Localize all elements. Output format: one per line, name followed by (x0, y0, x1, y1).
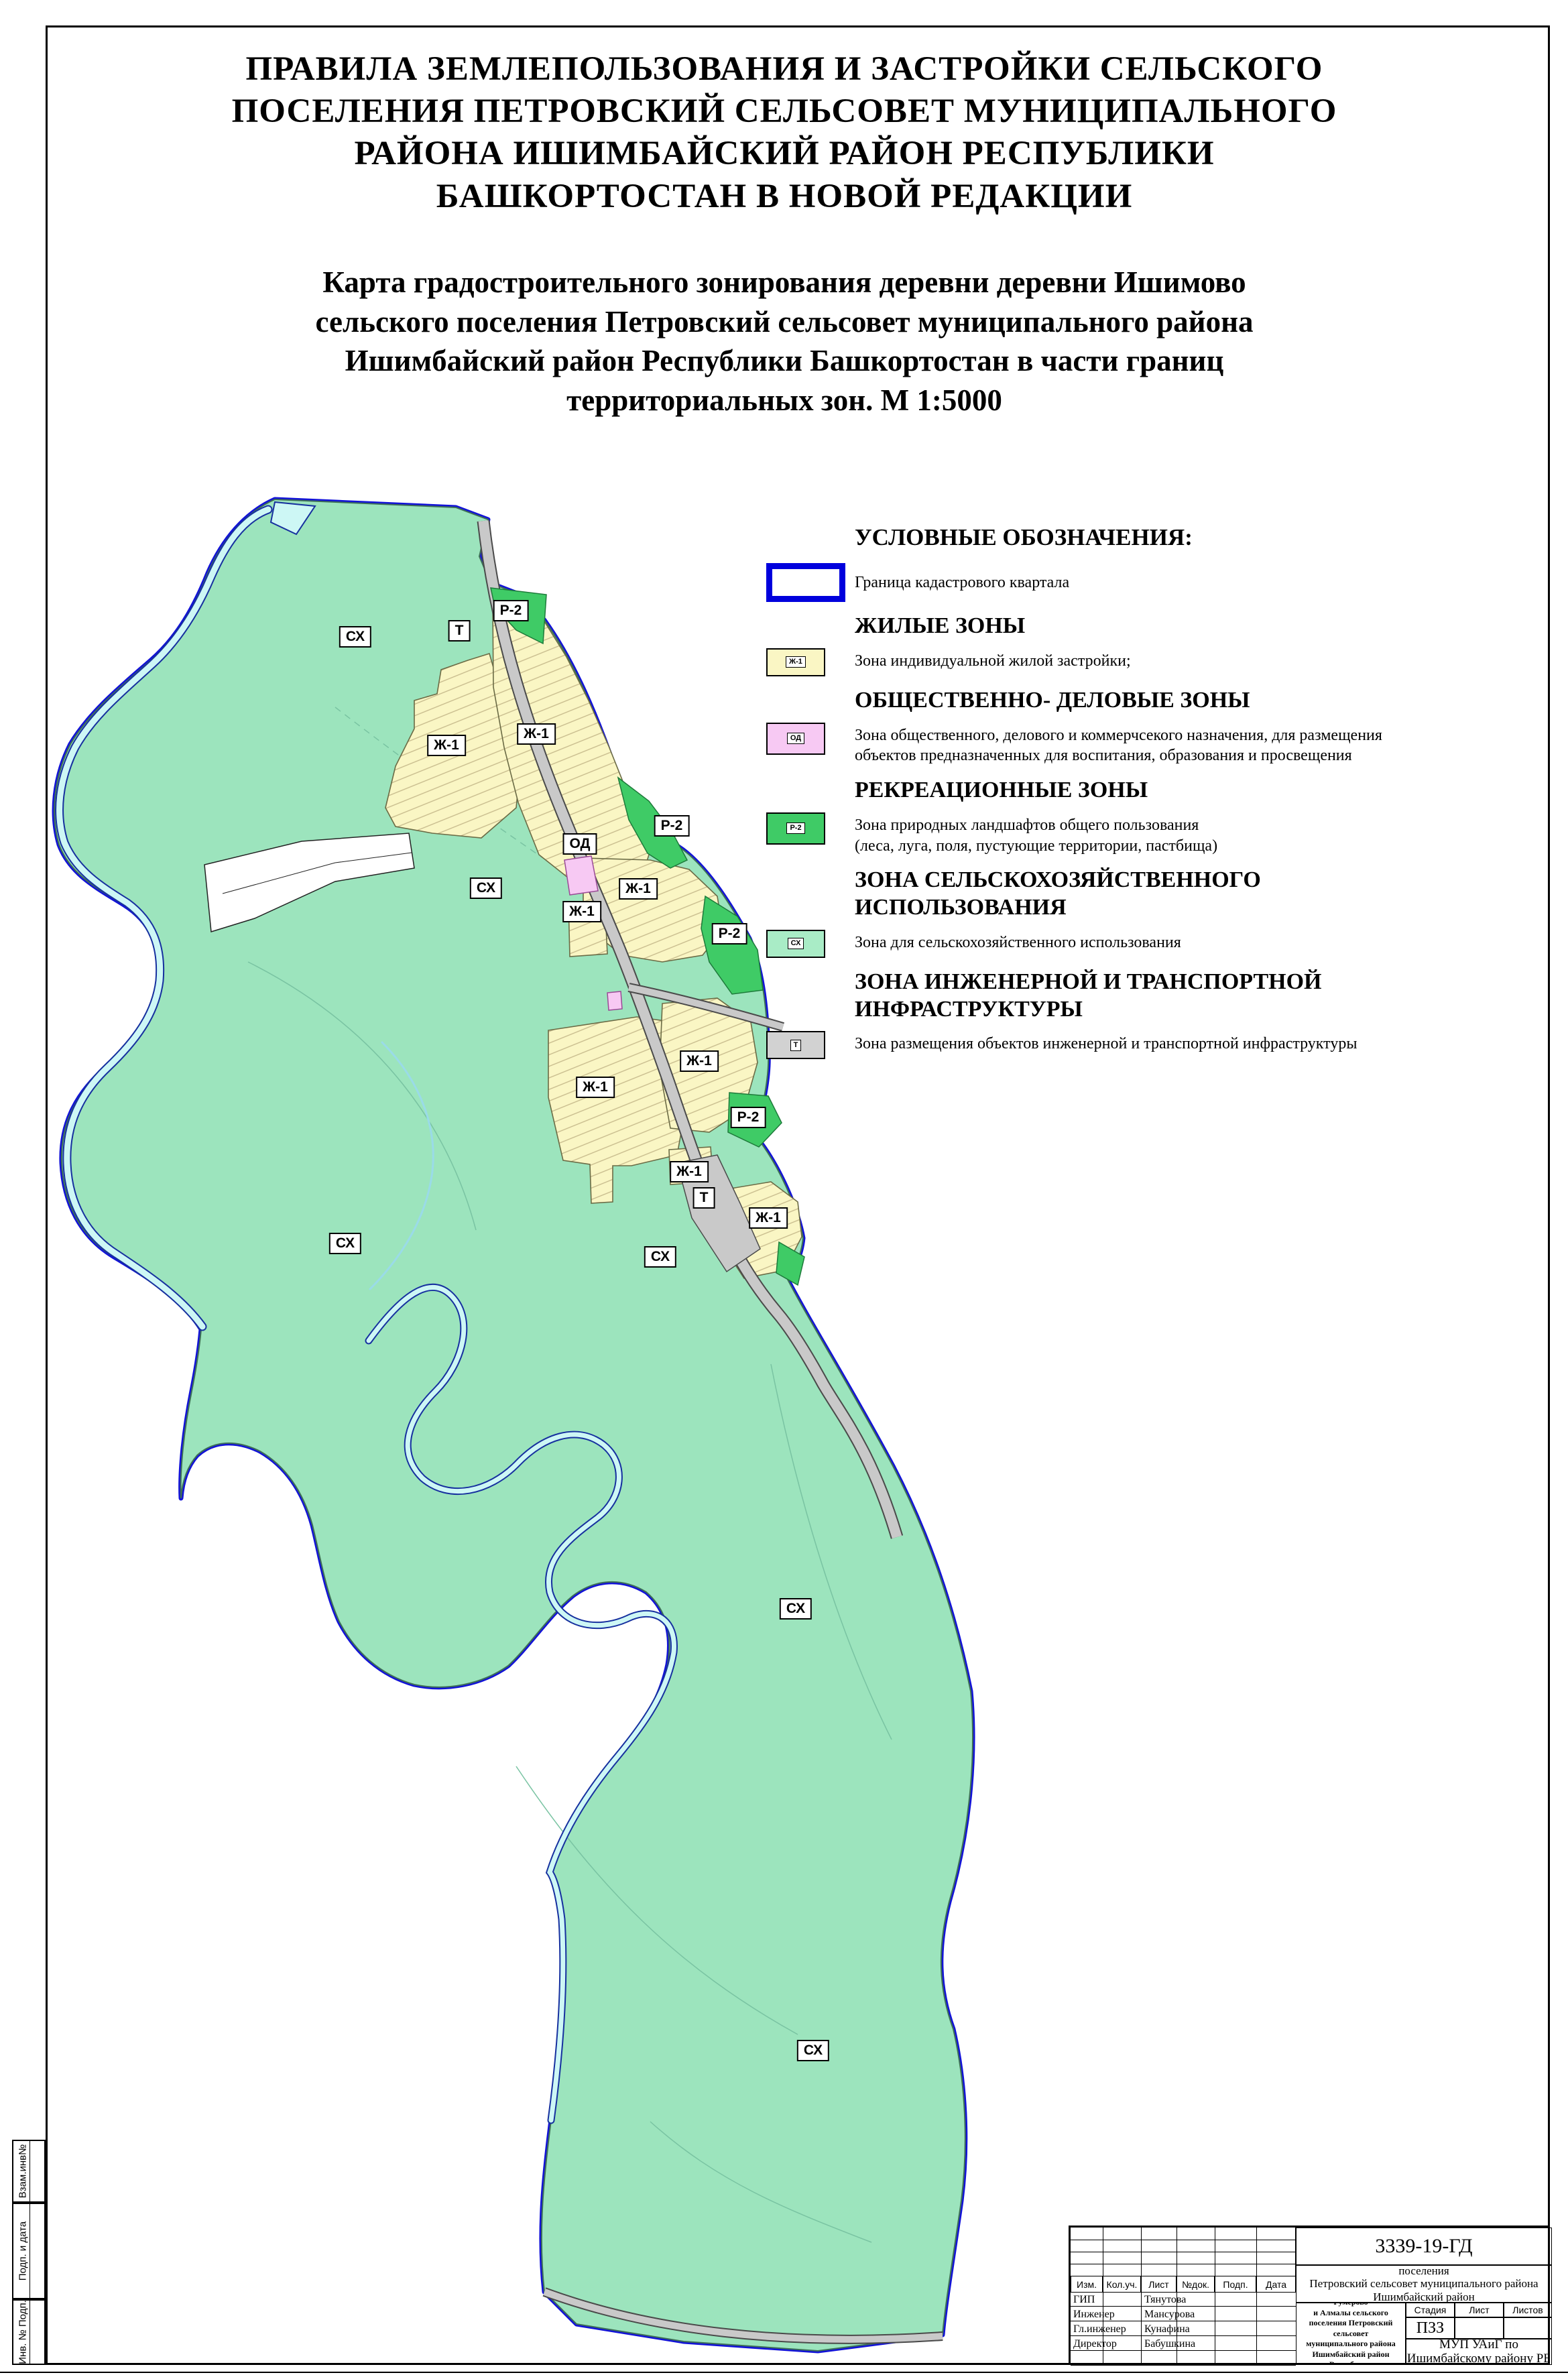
legend-item-label: Зона природных ландшафтов общего пользов… (855, 812, 1217, 856)
recreation-swatch: Р-2 (766, 812, 825, 845)
stamp-stage-label: Стадия (1406, 2303, 1455, 2317)
zone-label: Р-2 (654, 815, 690, 837)
stamp-col-data: Дата (1256, 2276, 1296, 2293)
stamp-role: Инженер (1073, 2309, 1115, 2321)
stamp-role-name: Мансурова (1144, 2309, 1195, 2321)
legend-item-label: Зона общественного, делового и коммерчсе… (855, 723, 1382, 766)
zone-label: Ж-1 (517, 723, 556, 745)
stamp-role: ГИП (1073, 2294, 1095, 2306)
stamp-role: Директор (1073, 2338, 1117, 2350)
zone-code: Ж-1 (786, 656, 806, 668)
stamp-sheet-label: Лист (1455, 2303, 1504, 2317)
legend-item-label: Зона для сельскохозяйственного использов… (855, 930, 1181, 953)
page-edge-line (0, 2372, 1568, 2373)
zone-label: СХ (797, 2040, 829, 2061)
legend-title: УСЛОВНЫЕ ОБОЗНАЧЕНИЯ: (855, 524, 1554, 551)
zone-code: СХ (788, 938, 804, 949)
side-cell-podp: Подп. и дата (12, 2203, 46, 2299)
page: ПРАВИЛА ЗЕМЛЕПОЛЬЗОВАНИЯ И ЗАСТРОЙКИ СЕЛ… (0, 0, 1568, 2375)
side-cell-inv: Инв. № Подп. (12, 2299, 46, 2365)
zone-label: Р-2 (712, 923, 747, 945)
zone-label: Ж-1 (670, 1161, 709, 1182)
agriculture-swatch: СХ (766, 930, 825, 958)
legend-item-residential: Ж-1 Зона индивидуальной жилой застройки; (766, 648, 1554, 676)
zone-label: Р-2 (731, 1107, 766, 1128)
legend-item-label: Граница кадастрового квартала (855, 563, 1069, 593)
zone-label: Ж-1 (749, 1207, 788, 1229)
legend-item-label: Зона размещения объектов инженерной и тр… (855, 1031, 1357, 1054)
business-swatch: ОД (766, 723, 825, 755)
zone-code: ОД (787, 733, 804, 744)
zone-label: Р-2 (493, 600, 529, 621)
stamp-col-list: Лист (1141, 2276, 1177, 2293)
legend-item-business: ОД Зона общественного, делового и коммер… (766, 723, 1554, 766)
zone-label: Ж-1 (576, 1077, 615, 1098)
zone-label: СХ (339, 626, 371, 648)
stamp-sheets-label: Листов (1504, 2303, 1552, 2317)
side-label: Взам.инв№ (17, 2138, 29, 2205)
legend-section-business: ОБЩЕСТВЕННО- ДЕЛОВЫЕ ЗОНЫ (855, 687, 1554, 715)
zone-label: Ж-1 (427, 735, 466, 756)
zone-label: Т (693, 1187, 715, 1209)
legend-item-agriculture: СХ Зона для сельскохозяйственного исполь… (766, 930, 1554, 958)
zone-label: Т (448, 620, 471, 642)
cadastre-boundary-swatch (766, 563, 845, 602)
legend-section-recreation: РЕКРЕАЦИОННЫЕ ЗОНЫ (855, 777, 1554, 804)
map-subtitle: Карта градостроительного зонирования дер… (107, 263, 1461, 420)
zone-code: Т (790, 1040, 802, 1051)
title-block: Изм. Кол.уч. Лист №док. Подп. Дата ГИП Т… (1069, 2226, 1550, 2365)
transport-swatch: Т (766, 1031, 825, 1059)
stamp-col-podp: Подп. (1215, 2276, 1256, 2293)
stamp-doc-number: 3339-19-ГД (1296, 2228, 1552, 2265)
legend-section-transport: ЗОНА ИНЖЕНЕРНОЙ И ТРАНСПОРТНОЙ ИНФРАСТРУ… (855, 969, 1554, 1024)
stamp-role: Гл.инженер (1073, 2323, 1126, 2335)
zone-label: СХ (644, 1246, 676, 1268)
zone-label: Ж-1 (680, 1050, 719, 1072)
zone-label: Ж-1 (562, 901, 601, 922)
zone-label: СХ (329, 1233, 361, 1254)
zone-label: Ж-1 (619, 878, 658, 900)
stamp-role-name: Тянутова (1144, 2294, 1186, 2306)
stamp-stage-value: ПЗЗ (1406, 2317, 1455, 2339)
side-label: Инв. № Подп. (17, 2299, 29, 2366)
side-label: Подп. и дата (17, 2217, 29, 2285)
zone-label: СХ (780, 1598, 812, 1620)
legend-item-label: Зона индивидуальной жилой застройки; (855, 648, 1131, 672)
zone-label: ОД (562, 833, 597, 855)
residential-swatch: Ж-1 (766, 648, 825, 676)
stamp-col-izm: Изм. (1071, 2276, 1103, 2293)
legend: УСЛОВНЫЕ ОБОЗНАЧЕНИЯ: Граница кадастрово… (766, 524, 1554, 1066)
stamp-col-koluch: Кол.уч. (1103, 2276, 1141, 2293)
legend-section-agriculture: ЗОНА СЕЛЬСКОХОЗЯЙСТВЕННОГО ИСПОЛЬЗОВАНИЯ (855, 867, 1554, 922)
stamp-organization: МУП УАиГ по Ишимбайскому району РБ (1406, 2339, 1552, 2365)
legend-section-residential: ЖИЛЫЕ ЗОНЫ (855, 613, 1554, 640)
document-title: ПРАВИЛА ЗЕМЛЕПОЛЬЗОВАНИЯ И ЗАСТРОЙКИ СЕЛ… (60, 48, 1508, 218)
legend-item-transport: Т Зона размещения объектов инженерной и … (766, 1031, 1554, 1059)
zone-code: Р-2 (786, 823, 804, 834)
stamp-map-description: Карта градостроительного зонирования дер… (1296, 2303, 1406, 2365)
stamp-role-name: Бабушкина (1144, 2338, 1195, 2350)
zone-label: СХ (470, 877, 502, 899)
legend-item-recreation: Р-2 Зона природных ландшафтов общего пол… (766, 812, 1554, 856)
legend-item-boundary: Граница кадастрового квартала (766, 563, 1554, 602)
side-cell-vzam: Взам.инв№ (12, 2140, 46, 2203)
stamp-col-dok: №док. (1177, 2276, 1215, 2293)
stamp-role-name: Кунафина (1144, 2323, 1190, 2335)
stamp-project-name: Правила землепользования и застройки сел… (1296, 2265, 1552, 2303)
